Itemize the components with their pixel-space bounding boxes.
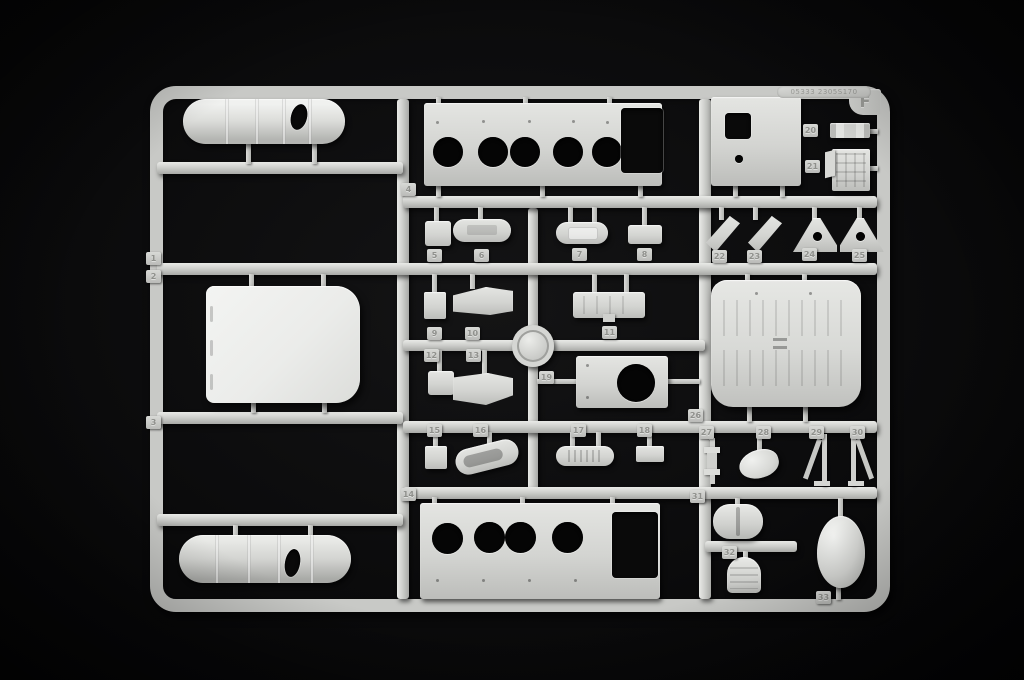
part-number-tag: 7 <box>572 248 587 261</box>
part-number-tag: 24 <box>802 248 817 261</box>
small-bracket-part <box>425 221 451 246</box>
rivet <box>586 396 589 399</box>
sprue-rail-h4-center <box>403 340 705 351</box>
plate-part <box>628 225 662 244</box>
part-number-tag: 20 <box>803 124 818 137</box>
strut-part-left <box>806 434 836 488</box>
gate <box>719 207 724 220</box>
small-plate-part <box>425 446 447 469</box>
gate <box>753 207 758 220</box>
part-number-tag: 18 <box>637 424 652 437</box>
deck-latch-detail <box>773 338 787 341</box>
rivet <box>528 579 531 582</box>
ribbed-deck-panel-part <box>711 280 861 407</box>
float-pontoon-part-bottom <box>179 535 351 583</box>
vent-ribs <box>568 450 602 462</box>
sprue-photo: F 05333 2305S170 1 2 3 4 5 6 7 8 9 10 11… <box>0 0 1024 680</box>
sprue-rail-h3 <box>157 263 877 275</box>
firewall-panel-part <box>711 97 801 186</box>
radiator-grille-part <box>573 292 645 318</box>
valve-stem <box>710 475 715 484</box>
gate <box>432 274 437 294</box>
runner-ring-junction <box>512 325 554 367</box>
rivet <box>574 579 577 582</box>
strut-diagonal <box>855 438 874 479</box>
part-number-tag: 8 <box>637 248 652 261</box>
egg-float-tip-part <box>817 516 865 588</box>
rivet <box>436 121 439 124</box>
rivet <box>586 364 589 367</box>
float-band <box>277 535 281 583</box>
gate <box>482 350 487 375</box>
part-number-tag: 26 <box>688 409 703 422</box>
fin-hole <box>813 232 822 241</box>
panel-slot <box>210 374 213 390</box>
porthole-hole <box>510 137 540 167</box>
doorway-cutout <box>621 108 663 173</box>
float-band <box>255 99 259 144</box>
gate <box>642 207 647 227</box>
small-block-part <box>424 292 446 319</box>
strut-diagonal <box>803 438 822 479</box>
panel-slot <box>210 340 213 356</box>
small-angle-part <box>428 371 454 395</box>
float-band <box>215 535 219 583</box>
sprue-rail-h2 <box>403 196 877 208</box>
gate <box>667 379 700 384</box>
sprue-rail-h1-left <box>157 162 403 174</box>
doorway-cutout <box>612 512 658 578</box>
panel-slot <box>210 306 213 322</box>
deck-ribs-upper <box>723 300 849 336</box>
part-number-tag: 32 <box>722 546 737 559</box>
bulkhead-panel-part <box>576 356 668 408</box>
vent-strip-part <box>556 446 614 466</box>
gate <box>312 141 317 164</box>
small-rect-part <box>636 446 664 462</box>
valve-stack-part <box>704 438 720 484</box>
part-number-tag: 9 <box>427 327 442 340</box>
radio-box-part <box>832 149 870 191</box>
part-number-tag: 27 <box>699 426 714 439</box>
gate <box>246 141 251 164</box>
part-number-tag: 33 <box>816 591 831 604</box>
fuselage-side-panel-top <box>424 103 662 186</box>
fairing-recess <box>467 225 497 235</box>
part-number-tag: 1 <box>146 252 161 265</box>
part-number-tag: 6 <box>474 249 489 262</box>
fin-hole <box>856 232 865 241</box>
porthole-hole <box>505 522 536 553</box>
rivet <box>606 121 609 124</box>
part-number-tag: 13 <box>466 349 481 362</box>
sprue-rail-h4-left <box>157 412 403 424</box>
grille-ribs <box>583 296 635 314</box>
float-opening-cutout <box>288 102 310 131</box>
porthole-hole <box>474 522 505 553</box>
valve-body <box>707 453 717 469</box>
float-pontoon-part-top <box>183 99 345 144</box>
rivet <box>572 120 575 123</box>
bulkhead-hole <box>617 364 655 402</box>
float-band <box>310 535 314 583</box>
grille-tab <box>603 314 615 322</box>
hatch-oval-part <box>556 222 608 244</box>
rivet <box>809 292 812 295</box>
part-number-tag: 23 <box>747 250 762 263</box>
rivet <box>482 579 485 582</box>
deck-ribs-lower <box>723 350 849 386</box>
part-number-tag: 31 <box>690 490 705 503</box>
porthole-hole <box>552 522 583 553</box>
hatch-detail <box>568 227 598 240</box>
sprue-rail-h6 <box>403 487 877 499</box>
part-number-tag: 2 <box>146 270 161 283</box>
part-number-tag: 21 <box>805 160 820 173</box>
part-number-tag: 5 <box>427 249 442 262</box>
scoop-opening <box>462 447 504 468</box>
part-number-tag: 29 <box>809 426 824 439</box>
gate <box>470 274 475 289</box>
rivet <box>436 579 439 582</box>
strut-foot <box>848 481 864 486</box>
box-flap <box>825 150 835 178</box>
fairing-strip-part <box>453 219 511 242</box>
strut-part-right <box>842 434 872 488</box>
part-number-tag: 14 <box>401 488 416 501</box>
deck-latch-detail <box>773 346 787 349</box>
rivet <box>482 120 485 123</box>
part-number-tag: 22 <box>712 250 727 263</box>
part-number-tag: 28 <box>756 426 771 439</box>
part-number-tag: 19 <box>539 371 554 384</box>
strut-bar <box>822 434 827 486</box>
square-cutout <box>725 113 751 139</box>
part-number-tag: 4 <box>401 183 416 196</box>
rivet <box>528 120 531 123</box>
float-band <box>225 99 229 144</box>
dome-ribs <box>730 567 758 589</box>
fuselage-side-panel-bottom <box>420 503 660 599</box>
sprue-rail-h5-left <box>157 514 403 526</box>
gate <box>624 274 629 293</box>
part-number-tag: 10 <box>465 327 480 340</box>
cowl-divider <box>736 507 740 536</box>
part-number-tag: 30 <box>850 426 865 439</box>
mold-number-text: 05333 2305S170 <box>777 86 871 98</box>
gate <box>596 432 601 447</box>
dome-cap-part <box>727 557 761 593</box>
cabin-roof-panel-part <box>206 286 360 403</box>
sprue-rail-h7-right-short <box>705 541 797 552</box>
porthole-hole <box>433 137 463 167</box>
strut-foot <box>814 481 830 486</box>
porthole-hole <box>553 137 583 167</box>
part-number-tag: 16 <box>473 424 488 437</box>
float-band <box>282 99 286 144</box>
porthole-hole <box>592 137 622 167</box>
float-opening-cutout <box>283 548 303 578</box>
gate <box>592 274 597 293</box>
part-number-tag: 11 <box>602 326 617 339</box>
box-grid-detail <box>836 153 866 187</box>
part-number-tag: 15 <box>427 424 442 437</box>
part-number-tag: 3 <box>146 416 161 429</box>
spool-part <box>830 123 870 138</box>
porthole-hole <box>478 137 508 167</box>
part-number-tag: 25 <box>852 249 867 262</box>
twin-oval-cowl-part <box>713 504 763 539</box>
porthole-hole <box>432 523 463 554</box>
part-number-tag: 17 <box>571 424 586 437</box>
part-number-tag: 12 <box>424 349 439 362</box>
gate <box>838 498 843 518</box>
float-band <box>308 99 312 144</box>
rivet <box>755 292 758 295</box>
small-hole <box>735 155 743 163</box>
float-band <box>247 535 251 583</box>
